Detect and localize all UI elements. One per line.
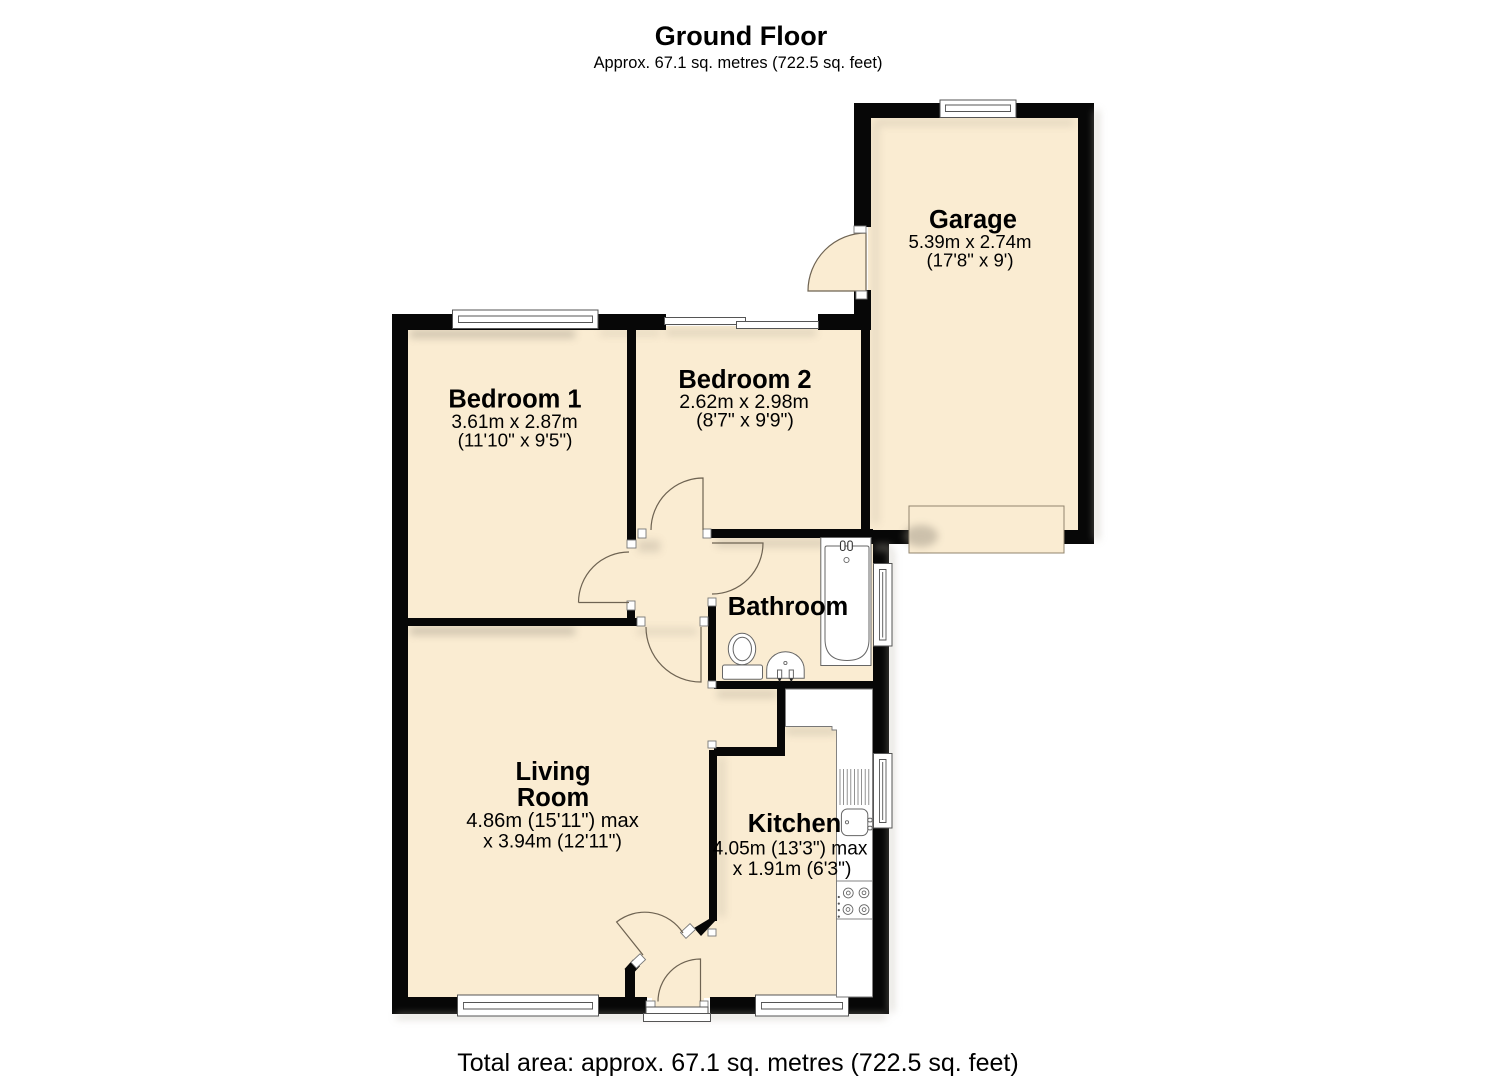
svg-text:(17'8" x 9'): (17'8" x 9') bbox=[926, 250, 1013, 271]
svg-text:Room: Room bbox=[517, 784, 589, 812]
svg-text:Ground Floor: Ground Floor bbox=[655, 21, 828, 51]
svg-text:(8'7" x 9'9"): (8'7" x 9'9") bbox=[696, 410, 794, 432]
svg-text:Living: Living bbox=[515, 758, 590, 786]
svg-text:Bathroom: Bathroom bbox=[728, 593, 848, 621]
svg-text:Kitchen: Kitchen bbox=[748, 810, 842, 838]
svg-text:x 3.94m (12'11"): x 3.94m (12'11") bbox=[483, 832, 622, 853]
svg-text:Bedroom 1: Bedroom 1 bbox=[448, 386, 581, 414]
svg-text:Garage: Garage bbox=[929, 206, 1017, 234]
svg-text:4.86m (15'11") max: 4.86m (15'11") max bbox=[466, 810, 639, 832]
svg-text:Approx. 67.1 sq. metres (722.5: Approx. 67.1 sq. metres (722.5 sq. feet) bbox=[594, 54, 883, 72]
svg-text:4.05m (13'3") max: 4.05m (13'3") max bbox=[713, 839, 868, 860]
svg-text:x 1.91m (6'3"): x 1.91m (6'3") bbox=[733, 859, 852, 880]
svg-text:Total area: approx. 67.1 sq. m: Total area: approx. 67.1 sq. metres (722… bbox=[457, 1049, 1018, 1077]
svg-text:(11'10" x 9'5"): (11'10" x 9'5") bbox=[458, 431, 573, 452]
svg-text:Bedroom 2: Bedroom 2 bbox=[678, 366, 811, 394]
